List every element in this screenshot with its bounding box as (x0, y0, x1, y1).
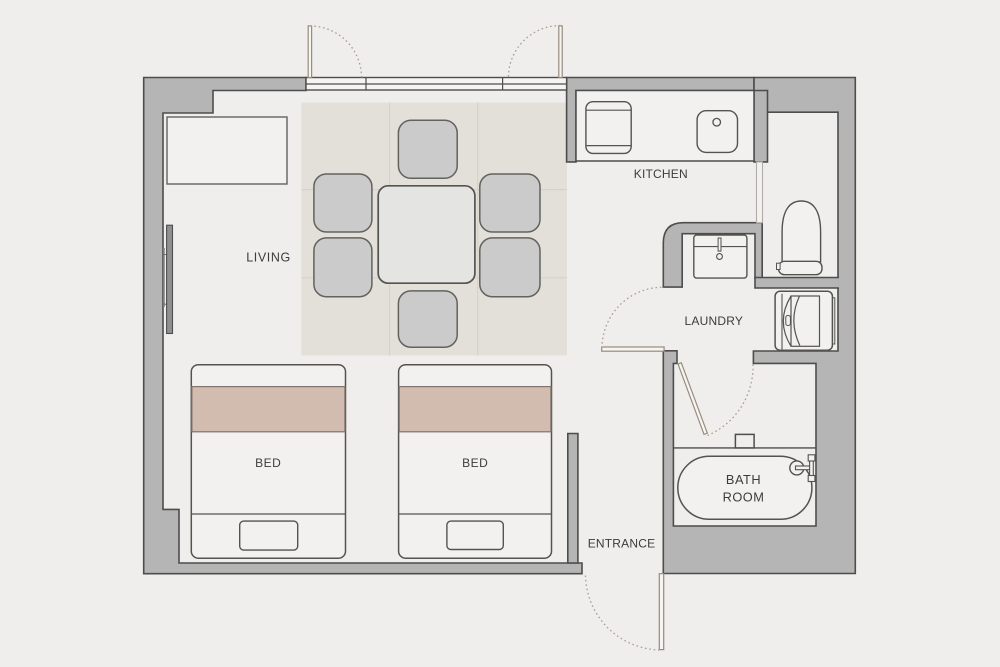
svg-text:BED: BED (462, 456, 488, 470)
svg-text:LIVING: LIVING (246, 251, 291, 265)
svg-text:ENTRANCE: ENTRANCE (588, 537, 656, 551)
svg-text:ROOM: ROOM (723, 490, 765, 505)
svg-text:KITCHEN: KITCHEN (634, 167, 688, 181)
svg-text:BATH: BATH (726, 472, 761, 487)
svg-text:LAUNDRY: LAUNDRY (685, 314, 744, 328)
svg-text:BED: BED (255, 456, 281, 470)
